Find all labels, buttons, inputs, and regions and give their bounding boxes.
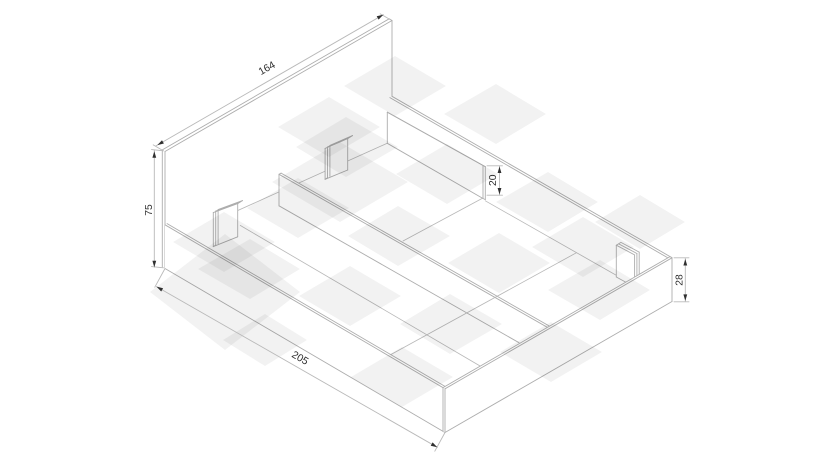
svg-text:75: 75 (144, 204, 155, 216)
svg-text:164: 164 (257, 60, 278, 78)
svg-text:20: 20 (488, 174, 499, 186)
svg-text:28: 28 (674, 274, 685, 286)
svg-text:205: 205 (290, 350, 311, 368)
